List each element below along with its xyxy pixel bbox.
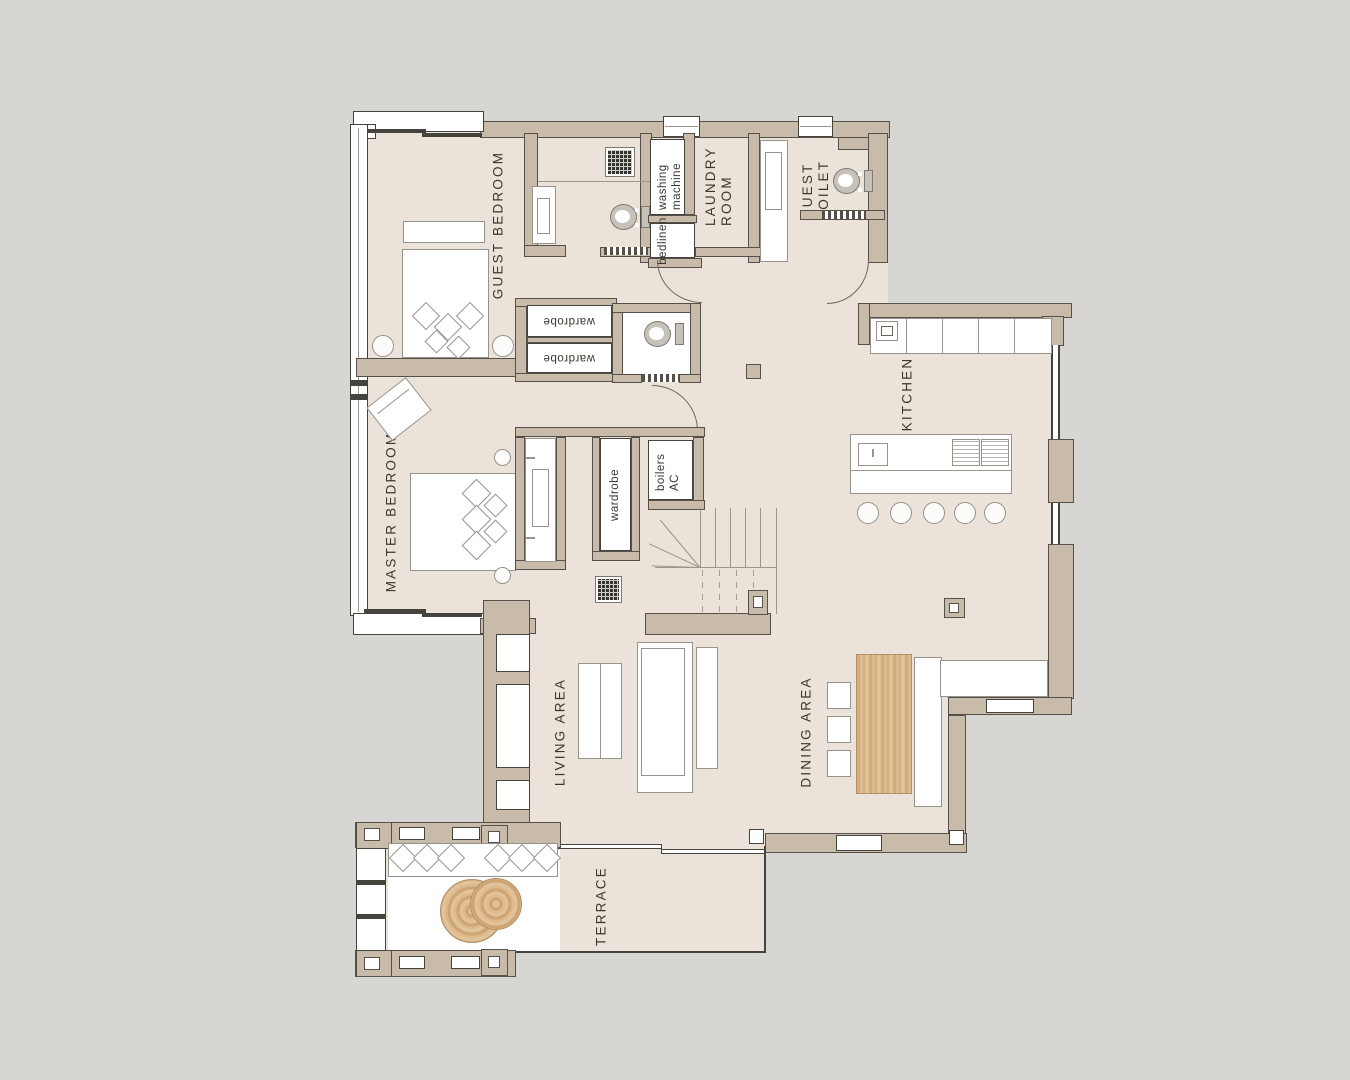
nightstand-icon	[492, 335, 514, 357]
wall-kitchen-north	[858, 303, 1072, 318]
terrace-edge-east	[764, 846, 766, 953]
hall-column	[746, 364, 761, 379]
toilet-icon	[644, 321, 684, 349]
window-kitchen-east	[1051, 345, 1060, 439]
wall-wc-south-left	[612, 374, 642, 383]
pilaster	[949, 830, 964, 845]
door-threshold	[642, 374, 679, 382]
console-table	[696, 647, 718, 769]
stair-dashed-line	[719, 570, 720, 612]
room-label-guest-bedroom: GUEST BEDROOM	[491, 151, 506, 299]
stair-tread	[700, 508, 701, 567]
terrace-window	[451, 956, 480, 969]
nightstand-icon	[494, 567, 511, 584]
stair-winder-line	[660, 520, 701, 568]
sliding-door	[558, 844, 662, 849]
nightstand-icon	[494, 449, 511, 466]
counter-divider	[978, 319, 979, 353]
island-faucet	[872, 449, 874, 457]
sliding-window-track	[364, 129, 426, 133]
stair-tread	[715, 508, 716, 567]
dining-table	[856, 654, 912, 794]
stair-dashed-line	[736, 570, 737, 612]
wall-stairs-south	[645, 613, 771, 635]
master-dressing-counter	[525, 438, 556, 562]
counter-sink-icon	[876, 321, 898, 341]
stair-tread	[730, 508, 731, 567]
window-dining-east	[986, 699, 1034, 713]
sofa-seat	[641, 648, 685, 776]
sliding-door	[661, 849, 766, 854]
window-band-tick	[351, 394, 367, 400]
stair-edge	[776, 508, 777, 614]
terrace-column-inner	[488, 831, 500, 843]
stair-dashed-line	[702, 570, 703, 612]
stair-winder-line	[649, 543, 700, 568]
cooktop-icon	[952, 439, 980, 466]
wall-closet	[592, 437, 600, 555]
wall-dining-east	[948, 715, 966, 837]
floor-vent-icon	[596, 577, 621, 602]
label-wardrobe-master: wardrobe	[609, 469, 621, 521]
wall-right-upper	[868, 133, 888, 263]
door-threshold	[604, 247, 648, 255]
room-label-dining-area: DINING AREA	[799, 676, 814, 787]
stairs-post-inner	[753, 596, 763, 608]
wall-closet-south	[592, 551, 640, 561]
pilaster	[749, 829, 764, 844]
dressing-tick	[526, 537, 535, 539]
sliding-window-track	[364, 609, 426, 613]
stool-icon	[954, 502, 976, 524]
sliding-window-track	[422, 133, 482, 137]
wall-closet-north	[515, 427, 705, 437]
terrace-column	[356, 822, 392, 849]
stair-tread	[745, 508, 746, 567]
stool-icon	[923, 502, 945, 524]
dining-chair	[827, 682, 851, 709]
toilet-icon	[610, 204, 650, 231]
wall-closet	[515, 437, 525, 565]
terrace-column-inner	[488, 956, 500, 968]
bathroom-sink-icon	[537, 198, 550, 234]
room-label-laundry: LAUNDRY ROOM	[703, 146, 735, 226]
coffee-table	[578, 663, 622, 759]
room-label-terrace: TERRACE	[594, 866, 609, 946]
terrace-window-tick	[357, 914, 385, 919]
terrace-window	[399, 827, 425, 840]
room-label-master-bedroom: MASTER BEDROOM	[384, 432, 399, 593]
window-dining-south	[836, 835, 882, 851]
wall-closet	[556, 437, 566, 565]
stair-tread	[760, 508, 761, 567]
counter-sink-basin	[881, 326, 893, 336]
sofa	[637, 642, 693, 793]
guest-bed-bench	[403, 221, 485, 243]
window-laundry-mullion	[665, 126, 698, 127]
wall-wardrobe-west	[515, 298, 527, 382]
door-threshold	[822, 211, 866, 219]
terrace-round-table	[470, 878, 522, 930]
kitchen-column-inner	[949, 603, 959, 613]
island-sink-icon	[858, 443, 888, 466]
nightstand-icon	[372, 335, 394, 357]
dressing-sink-icon	[532, 469, 549, 527]
dining-bench	[914, 657, 942, 807]
island-divider	[851, 470, 1011, 471]
room-label-kitchen: KITCHEN	[900, 357, 915, 432]
terrace-window	[452, 827, 480, 840]
wall-east	[1048, 439, 1074, 503]
shower-drain-icon	[606, 148, 634, 176]
terrace-column-inner	[364, 828, 380, 841]
sliding-window-track	[422, 613, 482, 617]
master-bed	[410, 473, 516, 571]
label-wardrobe-hall-top: wardrobe	[543, 315, 595, 327]
window-guest-toilet-mullion	[800, 126, 831, 127]
toilet-icon	[833, 168, 873, 196]
counter-divider	[942, 319, 943, 353]
wall-kitchen-stub	[858, 303, 870, 345]
living-niche	[496, 684, 530, 768]
stool-icon	[984, 502, 1006, 524]
wall-wc-west	[612, 303, 623, 383]
living-niche	[496, 634, 530, 672]
kitchen-column	[944, 598, 965, 618]
shower-screen-line	[538, 181, 650, 182]
wall-wc-north	[612, 303, 701, 313]
wall-laundry-east	[748, 133, 760, 263]
counter-divider	[1014, 319, 1015, 353]
bathroom-vanity	[532, 186, 556, 244]
wall-bathroom-south-left	[524, 245, 566, 257]
cooktop-icon	[981, 439, 1009, 466]
terrace-window-band-west	[356, 848, 386, 951]
guest-toilet-vanity	[760, 140, 788, 262]
living-niche	[496, 780, 530, 810]
stool-icon	[857, 502, 879, 524]
dining-chair	[827, 716, 851, 743]
terrace-column	[481, 949, 508, 976]
stair-edge	[655, 567, 776, 568]
dressing-tick	[526, 457, 535, 459]
room-label-living-area: LIVING AREA	[553, 678, 568, 786]
wall-wc-south-right	[679, 374, 701, 383]
label-bedlinen: bedlinen	[657, 217, 669, 264]
label-boilers-ac: boilers AC	[655, 449, 683, 491]
label-wardrobe-hall-bottom: wardrobe	[543, 352, 595, 364]
floor-plan: GUEST BEDROOM washing machine bedlinen L…	[0, 0, 1350, 1080]
dining-chair	[827, 750, 851, 777]
dining-sideboard	[940, 660, 1048, 697]
wall-guest-bedroom-south	[356, 358, 517, 377]
terrace-window-tick	[357, 880, 385, 885]
terrace-window	[399, 956, 425, 969]
stool-icon	[890, 502, 912, 524]
wall-wardrobe-south	[515, 373, 617, 382]
wall-east	[1048, 544, 1074, 699]
guest-toilet-sink-icon	[765, 152, 782, 210]
wall-laundry-south	[695, 247, 762, 257]
stairs-post	[748, 590, 768, 615]
terrace-column-inner	[364, 957, 380, 970]
coffee-table-divider	[600, 664, 601, 758]
window-band-tick	[351, 380, 367, 386]
counter-divider	[906, 319, 907, 353]
label-washing-machine: washing machine	[657, 154, 685, 210]
wall-closet	[631, 437, 640, 555]
wall-wc-east	[690, 303, 701, 383]
wall-niche-divider	[648, 215, 697, 223]
terrace-column	[356, 950, 392, 977]
terrace-edge-south	[516, 951, 766, 953]
window-east	[1051, 503, 1060, 544]
